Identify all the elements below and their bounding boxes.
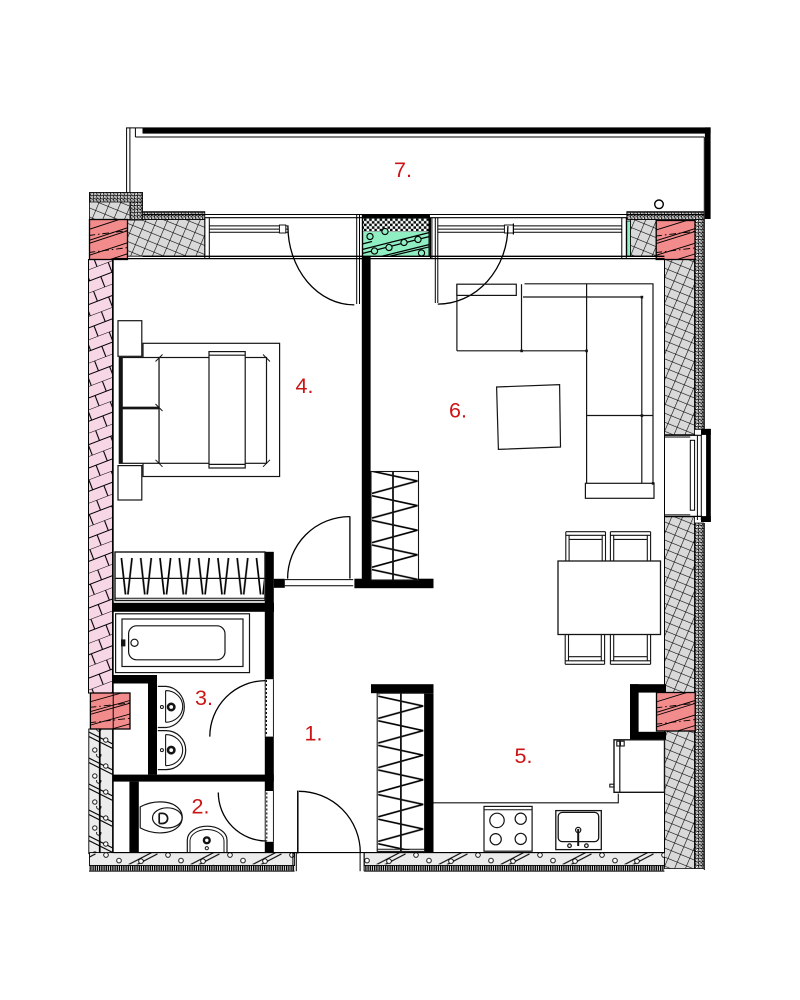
svg-text:1.: 1. [305,722,323,746]
svg-text:6.: 6. [449,399,467,423]
svg-text:4.: 4. [296,374,314,398]
svg-text:7.: 7. [394,158,412,182]
svg-text:3.: 3. [195,686,213,710]
svg-text:2.: 2. [192,794,210,818]
svg-text:5.: 5. [515,744,533,768]
